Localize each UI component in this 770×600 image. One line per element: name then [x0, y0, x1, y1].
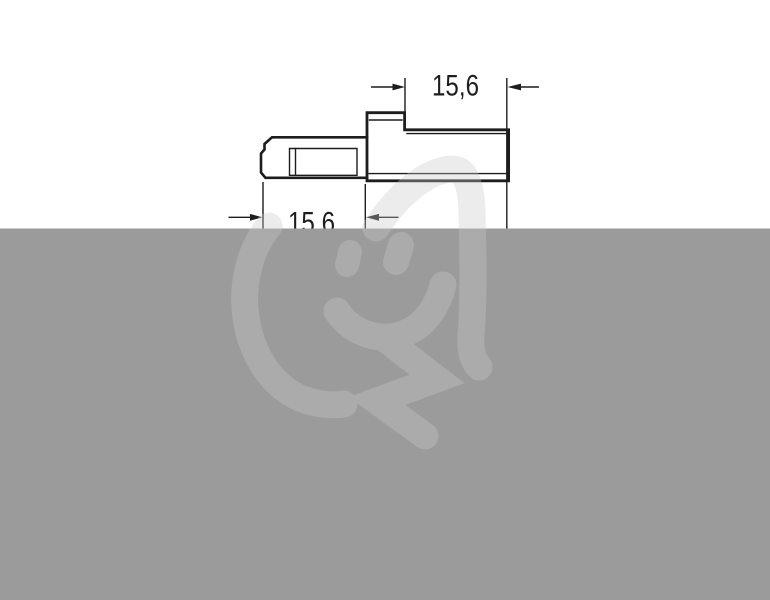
technical-drawing: 15,6 15,6 — [0, 0, 770, 600]
plug-right-eye-icon — [396, 245, 401, 262]
plug-left-eye-icon — [347, 252, 350, 265]
screenshot-canvas: 15,6 15,6 — [0, 0, 770, 600]
top-dimension-label: 15,6 — [432, 70, 479, 103]
